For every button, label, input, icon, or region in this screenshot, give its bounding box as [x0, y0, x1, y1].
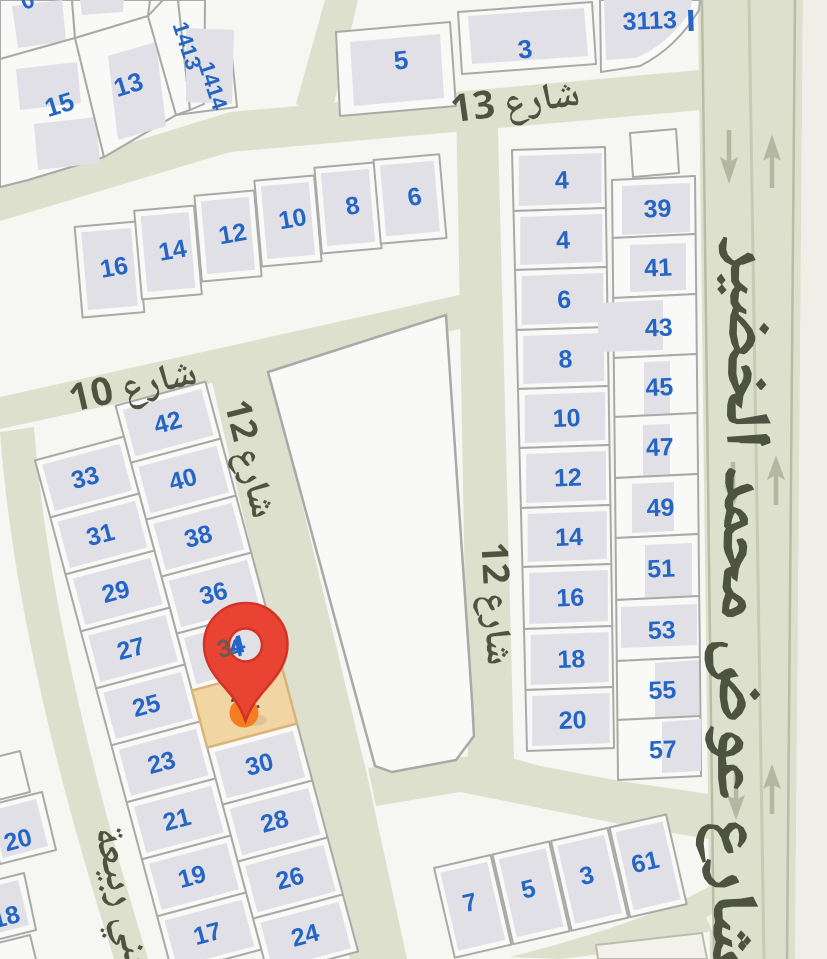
- svg-text:4: 4: [554, 166, 569, 194]
- svg-text:41: 41: [644, 254, 673, 283]
- svg-text:53: 53: [647, 616, 676, 645]
- svg-text:12: 12: [216, 218, 248, 250]
- svg-text:39: 39: [643, 195, 672, 224]
- svg-text:18: 18: [557, 645, 586, 674]
- svg-text:10: 10: [552, 404, 581, 433]
- svg-text:47: 47: [646, 433, 675, 462]
- svg-text:57: 57: [649, 736, 678, 765]
- svg-text:43: 43: [644, 314, 673, 343]
- svg-text:4: 4: [556, 226, 571, 254]
- svg-text:12: 12: [553, 464, 582, 493]
- svg-text:10: 10: [276, 203, 308, 235]
- svg-text:20: 20: [558, 706, 587, 735]
- svg-text:14: 14: [555, 523, 584, 552]
- svg-text:6: 6: [557, 286, 572, 314]
- svg-text:16: 16: [98, 251, 130, 283]
- svg-text:49: 49: [646, 494, 675, 523]
- svg-text:14: 14: [156, 234, 188, 266]
- svg-text:16: 16: [556, 584, 585, 613]
- svg-text:8: 8: [558, 345, 573, 373]
- svg-text:51: 51: [647, 555, 676, 584]
- svg-text:3113: 3113: [622, 6, 677, 36]
- svg-text:55: 55: [648, 676, 677, 705]
- svg-text:45: 45: [645, 373, 674, 402]
